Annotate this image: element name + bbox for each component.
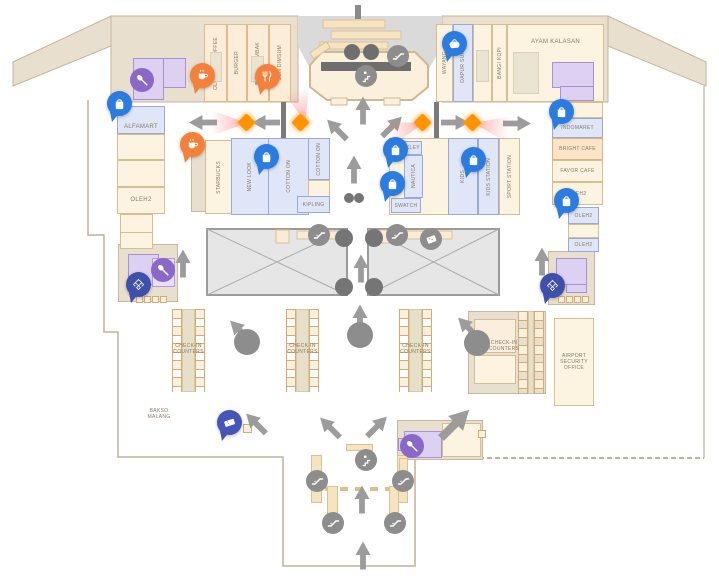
shopping-bag-icon xyxy=(466,152,481,167)
shopping-bag-icon xyxy=(554,104,569,119)
counter-desks xyxy=(518,311,528,394)
shop-label: SWATCH xyxy=(395,203,418,209)
shop-pin-cotton-on[interactable] xyxy=(254,144,279,169)
escalator-icon xyxy=(322,512,344,534)
atm-kiosk xyxy=(160,296,167,303)
shop-kipling: KIPLING xyxy=(297,196,330,213)
shop-label: OLEH2 xyxy=(130,197,151,204)
shop-label: COTTON ON xyxy=(286,160,292,193)
walk-flow-dot xyxy=(464,330,490,356)
shop-nautica: NAUTICA xyxy=(404,155,423,198)
prayer-room-icon xyxy=(545,278,560,293)
checkin-counter-2: CHECK-IN COUNTERS xyxy=(286,309,319,392)
baby-care-icon xyxy=(130,68,154,92)
shopping-bag-icon xyxy=(559,193,574,208)
counter-box xyxy=(474,355,516,384)
shop-pin-oleh2[interactable] xyxy=(554,188,579,213)
counter-desks xyxy=(534,311,544,394)
shopping-bag-icon xyxy=(112,96,127,111)
food-pin-starbucks[interactable] xyxy=(180,132,205,157)
shop-label: COTTON ON xyxy=(316,143,322,176)
shop-favor-cafe: FAVOR CAFE xyxy=(552,160,603,182)
kiosk-box xyxy=(478,430,486,438)
facility-room xyxy=(163,58,186,88)
baby-care-icon xyxy=(151,258,175,282)
shop-label: ALFAMART xyxy=(124,124,158,131)
unit-vacant xyxy=(308,180,330,197)
shop-label: SPORT STATION xyxy=(507,155,513,198)
pillar xyxy=(363,44,379,60)
ticket-counter-pin[interactable] xyxy=(217,410,242,435)
checkin-label: CHECK-IN COUNTERS xyxy=(281,343,324,356)
shop-label: FAVOR CAFE xyxy=(560,168,594,174)
checkin-counter-1: CHECK-IN COUNTERS xyxy=(172,309,205,392)
unit-vacant xyxy=(120,232,153,249)
escalator-icon xyxy=(387,45,409,67)
shop-oleh2: OLEH2 xyxy=(117,187,165,214)
pillar xyxy=(365,278,383,296)
shop-label: BURGER xyxy=(234,51,240,74)
coffee-cup-icon xyxy=(185,137,200,152)
walk-flow-dot xyxy=(347,322,373,348)
escalator-icon xyxy=(306,470,328,492)
shopping-bag-icon xyxy=(385,176,400,191)
prayer-room-pin[interactable] xyxy=(126,272,151,297)
shop-bright-cafe: BRIGHT CAFE xyxy=(552,138,603,160)
shop-sun-dimsum: SUN DIMSUM xyxy=(269,24,291,102)
escalator-icon xyxy=(392,470,414,492)
food-pin-restaurant[interactable] xyxy=(255,64,280,89)
kiosk-box xyxy=(476,50,489,82)
counter-desks-4 xyxy=(518,311,544,394)
shop-oleh2: OLEH2 xyxy=(568,238,599,252)
office-label: AIRPORT SECURITY OFFICE xyxy=(560,353,588,371)
shop-pin-oakley[interactable] xyxy=(383,137,408,162)
shop-label: OLEH2 xyxy=(575,242,593,248)
shop-label: NAUTICA xyxy=(411,164,417,188)
pillar xyxy=(344,193,354,203)
ticket-icon xyxy=(222,415,237,430)
atm-kiosk xyxy=(574,296,581,303)
shopping-bag-icon xyxy=(388,142,403,157)
stairs-icon xyxy=(355,65,377,87)
checkin-counter-3: CHECK-IN COUNTERS xyxy=(399,309,432,392)
shop-sport-station: SPORT STATION xyxy=(499,138,520,215)
escalator-icon xyxy=(308,224,330,246)
pillar xyxy=(354,193,364,203)
shop-bakso-malang-label: BAKSO MALANG xyxy=(135,408,183,420)
cutlery-icon xyxy=(260,69,275,84)
atm-kiosk xyxy=(566,296,573,303)
atm-kiosk xyxy=(152,296,159,303)
shop-starbucks: STARBUCKS xyxy=(205,140,232,214)
escalator-icon xyxy=(386,224,408,246)
walk-flow-dot xyxy=(234,329,260,355)
shop-swatch: SWATCH xyxy=(391,198,421,213)
shop-label: AYAM KALASAN xyxy=(531,39,580,46)
shop-label: NEW LOOK xyxy=(247,162,253,191)
coffee-cup-icon xyxy=(195,68,210,83)
escalator-icon xyxy=(384,512,406,534)
stairs-icon xyxy=(355,449,377,471)
shop-label: KIPLING xyxy=(303,202,325,208)
ticket-stamp-icon xyxy=(420,228,442,250)
shop-cotton-on: COTTON ON xyxy=(308,138,330,180)
pillar xyxy=(365,229,383,247)
airport-security-office: AIRPORT SECURITY OFFICE xyxy=(554,318,594,406)
pillar xyxy=(335,278,353,296)
shop-label: INDOMARET xyxy=(561,125,594,131)
airport-terminal-floorplan: ALFAMART OLEH2 OLD TOWN COFFEE BURGER BA… xyxy=(0,0,719,581)
prayer-room-icon xyxy=(131,277,146,292)
unit-vacant xyxy=(568,224,599,238)
checkin-label: CHECK-IN COUNTERS xyxy=(167,343,210,356)
prayer-room-pin[interactable] xyxy=(540,273,565,298)
shop-pin-indomaret[interactable] xyxy=(549,99,574,124)
shop-pin-swatch[interactable] xyxy=(380,171,405,196)
teapot-icon xyxy=(447,36,462,51)
shop-label: BANGI KOPI xyxy=(497,47,503,79)
pillar xyxy=(344,44,360,60)
shop-label: KIDS STATION xyxy=(486,158,492,196)
unit-vacant xyxy=(117,160,165,187)
shop-label: OLEH2 xyxy=(575,213,593,219)
shop-label: STARBUCKS xyxy=(216,161,222,194)
shop-pin-kids-station[interactable] xyxy=(461,147,486,172)
baby-care-icon xyxy=(400,434,424,458)
unit-vacant xyxy=(117,134,165,160)
checkin-label: CHECK-IN COUNTERS xyxy=(394,343,437,356)
shopping-bag-icon xyxy=(259,149,274,164)
atm-kiosk xyxy=(144,296,151,303)
unit-vacant xyxy=(120,214,153,233)
pillar xyxy=(335,229,353,247)
atm-kiosk xyxy=(558,296,565,303)
atm-kiosk xyxy=(582,296,589,303)
shop-bangi-kopi: BANGI KOPI xyxy=(492,24,507,102)
atm-kiosk xyxy=(136,296,143,303)
shop-label: BRIGHT CAFE xyxy=(559,146,596,152)
kiosk-box xyxy=(513,52,539,94)
shop-pin-dapur-sunda[interactable] xyxy=(442,31,467,56)
facility-room xyxy=(552,62,594,88)
facility-room xyxy=(566,284,587,293)
shop-pin-alfamart[interactable] xyxy=(107,91,132,116)
food-pin-old-town-coffee[interactable] xyxy=(190,63,215,88)
shop-burger: BURGER xyxy=(227,24,247,102)
